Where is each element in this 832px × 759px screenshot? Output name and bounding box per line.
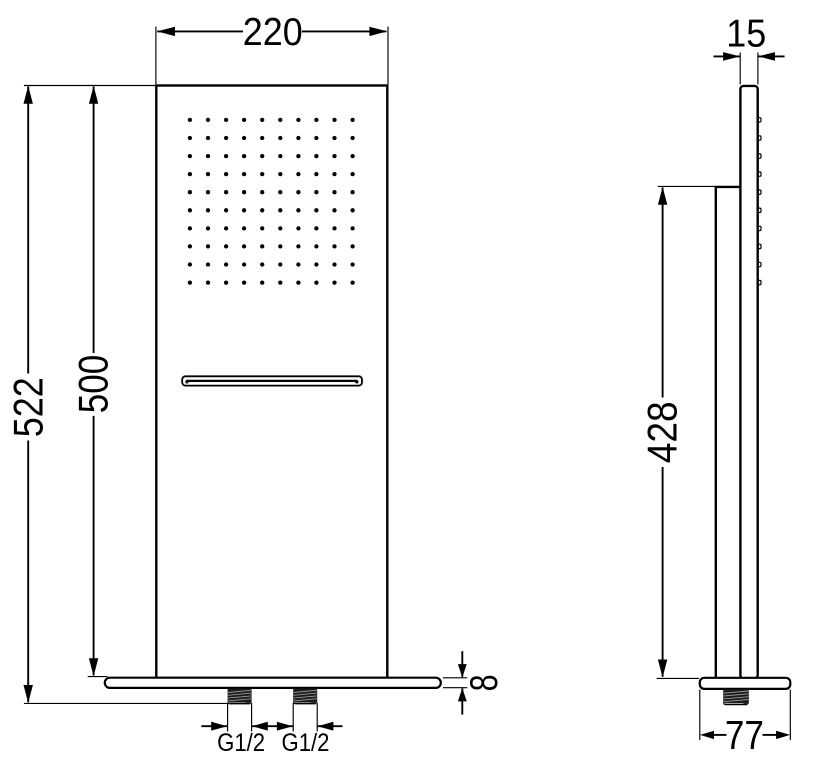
svg-text:8: 8 — [463, 674, 506, 691]
svg-text:G1/2: G1/2 — [217, 729, 265, 757]
svg-text:G1/2: G1/2 — [282, 729, 330, 757]
svg-text:220: 220 — [243, 11, 303, 54]
svg-text:522: 522 — [5, 377, 52, 437]
svg-text:500: 500 — [70, 355, 117, 414]
svg-text:15: 15 — [726, 13, 766, 56]
svg-text:428: 428 — [639, 401, 686, 463]
svg-text:77: 77 — [725, 712, 764, 758]
